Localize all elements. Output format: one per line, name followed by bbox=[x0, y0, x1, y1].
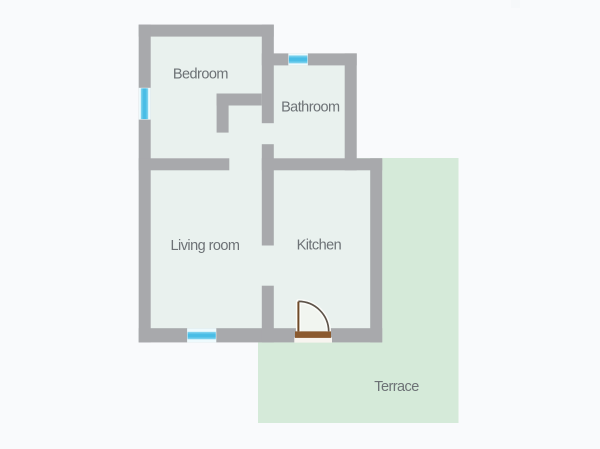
svg-text:Kitchen: Kitchen bbox=[297, 238, 342, 254]
svg-text:Living room: Living room bbox=[171, 238, 240, 254]
svg-text:Terrace: Terrace bbox=[374, 379, 419, 395]
svg-text:Bedroom: Bedroom bbox=[173, 67, 228, 83]
svg-text:Bathroom: Bathroom bbox=[281, 99, 340, 115]
